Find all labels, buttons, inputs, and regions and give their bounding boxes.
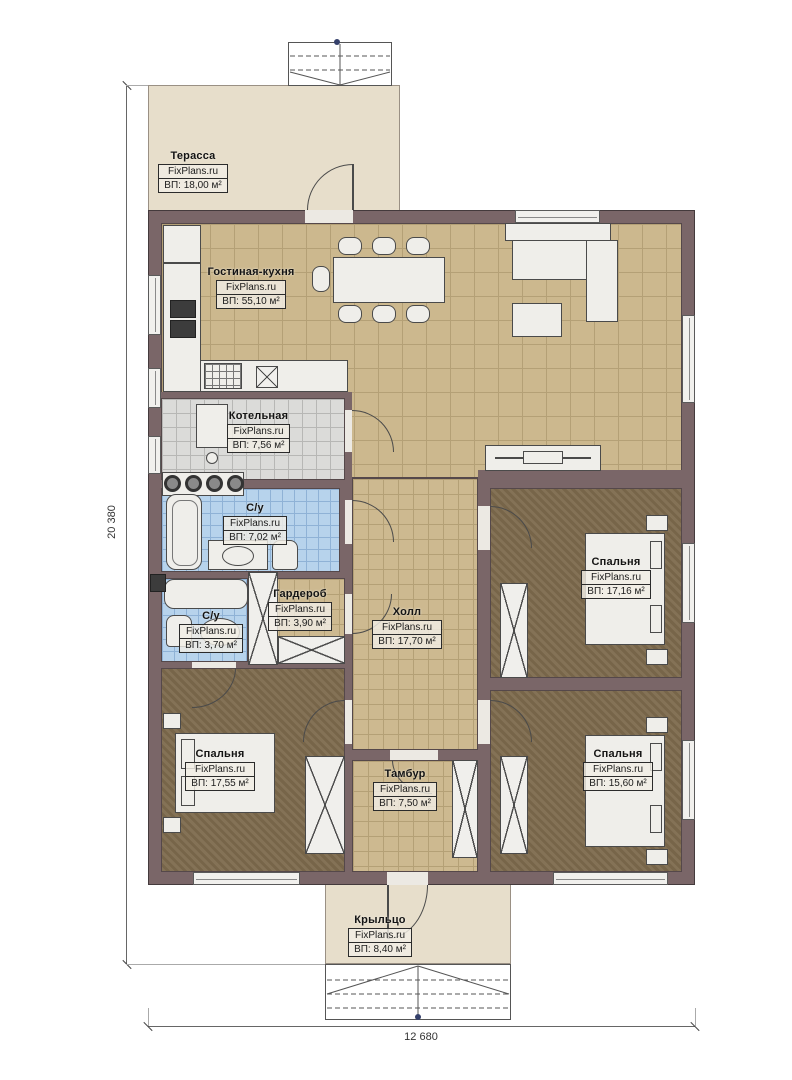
- terrace-door-opening: [305, 210, 353, 223]
- kitchen-sink-symbol: [256, 366, 278, 388]
- room-info-box: FixPlans.ru ВП: 15,60 м²: [583, 762, 652, 791]
- washer-dial: [227, 475, 244, 492]
- wall-kitchen-boiler: [161, 392, 345, 398]
- room-area: ВП: 3,70 м²: [180, 639, 242, 652]
- window-bedroom-se: [682, 740, 695, 820]
- brand-watermark: FixPlans.ru: [159, 165, 226, 179]
- room-name: Гостиная-кухня: [196, 266, 306, 278]
- room-info-box: FixPlans.ru ВП: 18,00 м²: [158, 164, 227, 193]
- floor-plan: Терасса FixPlans.ru ВП: 18,00 м² Гостина…: [0, 0, 792, 1080]
- washer-dial: [164, 475, 181, 492]
- window-bedroom-ne: [682, 543, 695, 623]
- washer-dial: [185, 475, 202, 492]
- wall-living-bedroom: [478, 470, 682, 488]
- brand-watermark: FixPlans.ru: [186, 763, 253, 777]
- bath1-door-opening: [345, 500, 352, 544]
- nightstand: [646, 515, 668, 531]
- dining-chair: [372, 237, 396, 255]
- kitchen-sink-bowl: [170, 300, 196, 318]
- nightstand: [163, 817, 181, 833]
- fridge: [163, 225, 201, 263]
- closet-bedroom-se: [500, 756, 528, 854]
- room-label-bedroom-sw: Спальня FixPlans.ru ВП: 17,55 м²: [170, 748, 270, 791]
- room-info-box: FixPlans.ru ВП: 3,90 м²: [268, 602, 332, 631]
- room-name: Спальня: [566, 556, 666, 568]
- dining-chair: [338, 237, 362, 255]
- dining-chair: [406, 237, 430, 255]
- room-area: ВП: 17,16 м²: [582, 585, 649, 598]
- room-info-box: FixPlans.ru ВП: 7,50 м²: [373, 782, 437, 811]
- room-info-box: FixPlans.ru ВП: 55,10 м²: [216, 280, 285, 309]
- window-living-north: [515, 210, 600, 223]
- brand-watermark: FixPlans.ru: [217, 281, 284, 295]
- wardrobe-cabinet-low: [278, 636, 345, 664]
- room-name: Крыльцо: [336, 914, 424, 926]
- room-name: Спальня: [568, 748, 668, 760]
- room-label-boiler: Котельная FixPlans.ru ВП: 7,56 м²: [206, 410, 311, 453]
- window-boiler-west-2: [148, 436, 161, 474]
- brand-watermark: FixPlans.ru: [584, 763, 651, 777]
- closet-bedroom-ne: [500, 583, 528, 678]
- sofa-chaise: [586, 240, 618, 322]
- room-label-bath2: С/у FixPlans.ru ВП: 3,70 м²: [162, 610, 260, 653]
- brand-watermark: FixPlans.ru: [224, 517, 286, 531]
- terrace-steps: [288, 42, 392, 86]
- room-info-box: FixPlans.ru ВП: 17,16 м²: [581, 570, 650, 599]
- room-name: С/у: [162, 610, 260, 622]
- boiler-drain: [206, 452, 218, 464]
- step-marker-dot: [415, 1014, 421, 1020]
- window-sill-bench: [505, 223, 611, 241]
- dining-chair: [338, 305, 362, 323]
- window-living-east: [682, 315, 695, 403]
- room-info-box: FixPlans.ru ВП: 7,56 м²: [227, 424, 291, 453]
- step-marker-dot: [334, 39, 340, 45]
- room-info-box: FixPlans.ru ВП: 17,70 м²: [372, 620, 441, 649]
- window-boiler-west: [148, 368, 161, 408]
- water-heater: [150, 574, 166, 592]
- nightstand: [646, 717, 668, 733]
- room-name: Спальня: [170, 748, 270, 760]
- dimension-line-horizontal: [148, 1026, 695, 1027]
- room-area: ВП: 55,10 м²: [217, 295, 284, 308]
- dimension-height-label: 20 380: [106, 482, 118, 562]
- window-bedroom-se-south: [553, 872, 668, 885]
- nightstand: [163, 713, 181, 729]
- dimension-line-vertical: [126, 85, 127, 965]
- bedroom-se-door-opening: [478, 700, 490, 744]
- room-area: ВП: 7,56 м²: [228, 439, 290, 452]
- tv: [523, 451, 563, 464]
- closet-tambour: [452, 760, 478, 858]
- bathtub-inner: [172, 500, 198, 566]
- room-label-terrace: Терасса FixPlans.ru ВП: 18,00 м²: [146, 150, 240, 193]
- window-bedroom-sw: [193, 872, 300, 885]
- kitchen-sink-bowl-2: [170, 320, 196, 338]
- room-label-tambour: Тамбур FixPlans.ru ВП: 7,50 м²: [362, 768, 448, 811]
- room-name: Холл: [363, 606, 451, 618]
- room-area: ВП: 15,60 м²: [584, 777, 651, 790]
- dining-chair: [406, 305, 430, 323]
- room-label-bedroom-se: Спальня FixPlans.ru ВП: 15,60 м²: [568, 748, 668, 791]
- pillow: [650, 605, 662, 633]
- bedroom-ne-door-opening: [478, 506, 490, 550]
- room-area: ВП: 17,70 м²: [373, 635, 440, 648]
- room-label-porch: Крыльцо FixPlans.ru ВП: 8,40 м²: [336, 914, 424, 957]
- entrance-door-opening: [387, 872, 428, 885]
- porch-steps: [325, 964, 511, 1020]
- dining-chair: [372, 305, 396, 323]
- boiler-door-opening: [345, 410, 352, 452]
- room-area: ВП: 3,90 м²: [269, 617, 331, 630]
- closet-bedroom-sw: [305, 756, 345, 854]
- room-name: С/у: [203, 502, 307, 514]
- room-info-box: FixPlans.ru ВП: 8,40 м²: [348, 928, 412, 957]
- room-info-box: FixPlans.ru ВП: 7,02 м²: [223, 516, 287, 545]
- brand-watermark: FixPlans.ru: [374, 783, 436, 797]
- brand-watermark: FixPlans.ru: [180, 625, 242, 639]
- room-name: Котельная: [206, 410, 311, 422]
- pillow: [650, 805, 662, 833]
- room-info-box: FixPlans.ru ВП: 3,70 м²: [179, 624, 243, 653]
- coffee-table: [512, 303, 562, 337]
- bathtub-2: [164, 579, 248, 609]
- room-area: ВП: 7,02 м²: [224, 531, 286, 544]
- room-name: Терасса: [146, 150, 240, 162]
- room-label-wardrobe: Гардероб FixPlans.ru ВП: 3,90 м²: [252, 588, 348, 631]
- room-label-bedroom-ne: Спальня FixPlans.ru ВП: 17,16 м²: [566, 556, 666, 599]
- extension-line: [126, 85, 148, 86]
- bedroom-sw-door-opening: [345, 700, 352, 744]
- room-area: ВП: 7,50 м²: [374, 797, 436, 810]
- nightstand: [646, 849, 668, 865]
- room-name: Гардероб: [252, 588, 348, 600]
- room-label-hall: Холл FixPlans.ru ВП: 17,70 м²: [363, 606, 451, 649]
- room-name: Тамбур: [362, 768, 448, 780]
- window-kitchen-west: [148, 275, 161, 335]
- room-area: ВП: 17,55 м²: [186, 777, 253, 790]
- brand-watermark: FixPlans.ru: [349, 929, 411, 943]
- washer-dial: [206, 475, 223, 492]
- room-area: ВП: 8,40 м²: [349, 943, 411, 956]
- extension-line: [126, 964, 325, 965]
- stove: [204, 363, 242, 389]
- extension-line: [695, 1008, 696, 1026]
- room-label-living: Гостиная-кухня FixPlans.ru ВП: 55,10 м²: [196, 266, 306, 309]
- room-info-box: FixPlans.ru ВП: 17,55 м²: [185, 762, 254, 791]
- brand-watermark: FixPlans.ru: [582, 571, 649, 585]
- dimension-width-label: 12 680: [381, 1031, 461, 1043]
- brand-watermark: FixPlans.ru: [228, 425, 290, 439]
- dining-table: [333, 257, 445, 303]
- nightstand: [646, 649, 668, 665]
- terrace-door-leaf: [352, 164, 354, 210]
- room-label-bath1: С/у FixPlans.ru ВП: 7,02 м²: [203, 502, 307, 545]
- extension-line: [148, 1008, 149, 1026]
- dining-chair: [312, 266, 330, 292]
- sink: [222, 546, 254, 566]
- brand-watermark: FixPlans.ru: [373, 621, 440, 635]
- wall-bedrooms-divider: [490, 678, 682, 690]
- tambour-door-opening: [390, 750, 438, 760]
- brand-watermark: FixPlans.ru: [269, 603, 331, 617]
- room-area: ВП: 18,00 м²: [159, 179, 226, 192]
